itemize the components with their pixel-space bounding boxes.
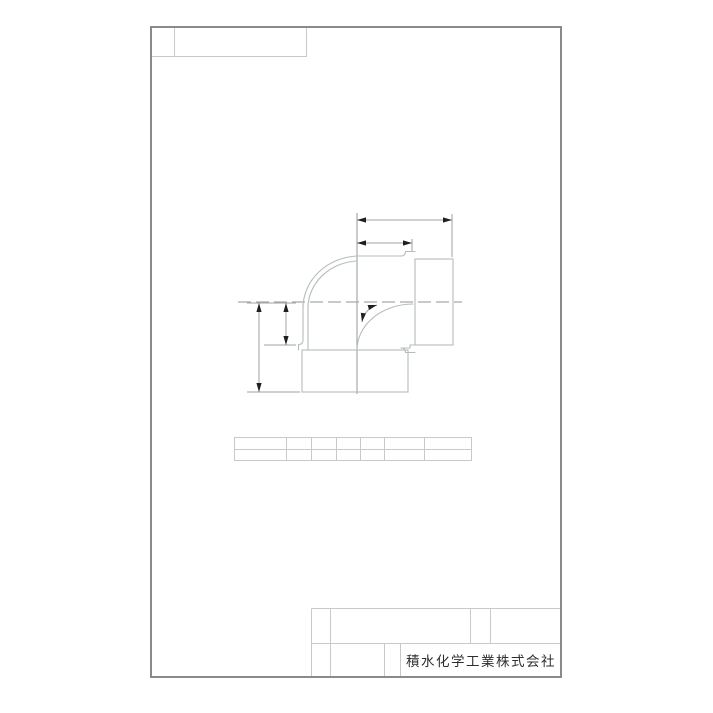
company-name: 積水化学工業株式会社 xyxy=(406,654,556,669)
sheet-tables xyxy=(151,27,562,678)
right-socket-ridge-top xyxy=(401,252,415,257)
vertical-leg-outer-edge xyxy=(299,305,304,350)
inner-corner-step xyxy=(401,345,415,348)
outer-arc xyxy=(303,256,357,308)
technical-drawing: 積水化学工業株式会社 xyxy=(0,0,713,713)
dimensions xyxy=(247,214,452,392)
cad-drawing-sheet: 積水化学工業株式会社 xyxy=(0,0,713,713)
outer-arc-parallel xyxy=(308,261,357,308)
drawing-frame xyxy=(151,27,561,677)
revision-box xyxy=(151,27,307,57)
radius-indicator-arc xyxy=(362,305,377,322)
inner-arc xyxy=(357,304,413,350)
elbow-fitting xyxy=(299,252,454,393)
parts-table xyxy=(235,438,472,461)
bottom-socket xyxy=(302,350,408,392)
